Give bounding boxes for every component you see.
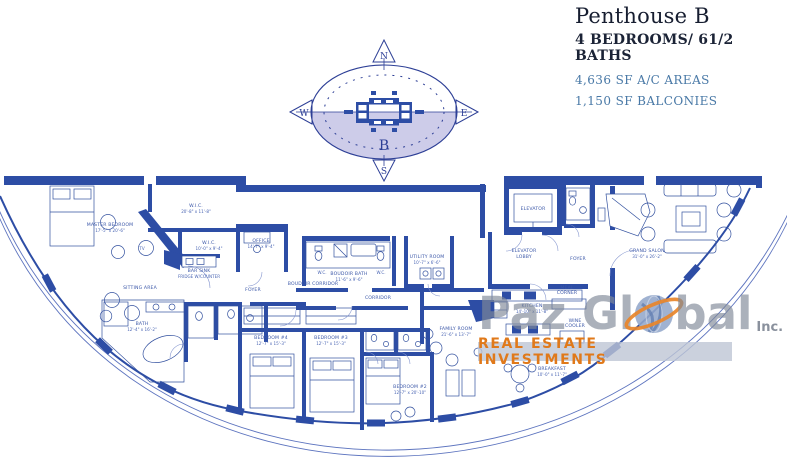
- room-dims-master-bath: 12'-4" x 16'-2": [127, 327, 157, 332]
- boudoir-bath-fixtures: [315, 244, 384, 260]
- floorplan-page: N S W E: [0, 0, 787, 460]
- compass-keyplan: N S W E: [290, 40, 478, 181]
- bedrooms-baths-subtitle: 4 BEDROOMS/ 61/2 BATHS: [575, 32, 787, 64]
- master-bath-fixtures: [139, 302, 253, 368]
- room-label-corridor: CORRIDOR: [365, 295, 392, 301]
- breakfast-table: [504, 364, 536, 392]
- room-dims-office: 14'-7" x 9'-4": [247, 244, 274, 249]
- compass-north-label: N: [380, 52, 388, 62]
- bedroom3-bed: [310, 358, 354, 412]
- room-dims-boudoir-bath: 11'-6" x 9'-6": [335, 277, 362, 282]
- room-dims-kitchen: 14'-10" x 11'-8": [516, 309, 548, 314]
- compass-south-label: S: [381, 167, 387, 177]
- room-label-wc-2: W.C.: [376, 270, 385, 275]
- room-label-foyer-right: FOYER: [570, 256, 586, 262]
- compass-east-label: E: [461, 109, 468, 119]
- kitchen-counters: [492, 290, 586, 343]
- grand-salon-seating: [641, 183, 741, 253]
- room-label-tv: TV: [138, 246, 145, 251]
- room-label-meal-corner2: CORNER: [557, 290, 578, 296]
- room-label-elevator: ELEVATOR: [521, 206, 546, 212]
- bedroom4-bed: [250, 354, 294, 408]
- room-dims-master-bedroom: 17'-5" x 20'-6": [95, 228, 125, 233]
- room-label-elevator-lobby: ELEVATOR: [512, 248, 537, 254]
- room-label-foyer-left: FOYER: [245, 287, 261, 293]
- room-dims-bedroom-4: 12'-7" x 15'-3": [256, 341, 286, 346]
- sitting-area-chairs: [100, 293, 139, 322]
- room-dims-wic-1: 20'-8" x 11'-8": [181, 209, 211, 214]
- room-dims-utility-room: 10'-7" x 6'-6": [413, 260, 440, 265]
- powder-room-fixtures: [569, 191, 586, 213]
- master-bed: [50, 186, 94, 246]
- room-label-wc-1: W.C.: [317, 270, 326, 275]
- room-dims-wic-2: 10'-0" x 9'-4": [195, 246, 222, 251]
- room-dims-grand-salon: 31'-0" x 26'-2": [632, 254, 662, 259]
- ac-area-stat: 4,636 SF A/C AREAS: [575, 73, 787, 87]
- room-dims-bar-sink: FRIDGE W/COUNTER: [178, 274, 220, 279]
- title-block: Penthouse B 4 BEDROOMS/ 61/2 BATHS 4,636…: [575, 4, 787, 108]
- bedroom-closets: [244, 308, 356, 324]
- room-dims-bedroom-3: 12'-7" x 15'-3": [316, 341, 346, 346]
- room-dims-family-room: 21'-6" x 13'-7": [441, 332, 471, 337]
- compass-unit-letter: B: [379, 138, 389, 154]
- bar-sink-counter: [182, 256, 216, 267]
- balcony-area-stat: 1,150 SF BALCONIES: [575, 94, 787, 108]
- compass-west-label: W: [299, 109, 309, 119]
- page-title: Penthouse B: [575, 4, 787, 28]
- room-dims-breakfast: 10'-0" x 11'-7": [537, 372, 567, 377]
- room-dims-bedroom-2: 12'-7" x 20'-10": [394, 390, 426, 395]
- room-label-boudoir-corridor: BOUDOIR CORRIDOR: [288, 281, 339, 287]
- room-label-sitting-area: SITTING AREA: [123, 285, 157, 291]
- washer-dryer: [420, 268, 444, 279]
- room-label-wine-cooler2: COOLER: [565, 323, 586, 329]
- room-label-elevator-lobby2: LOBBY: [516, 254, 532, 260]
